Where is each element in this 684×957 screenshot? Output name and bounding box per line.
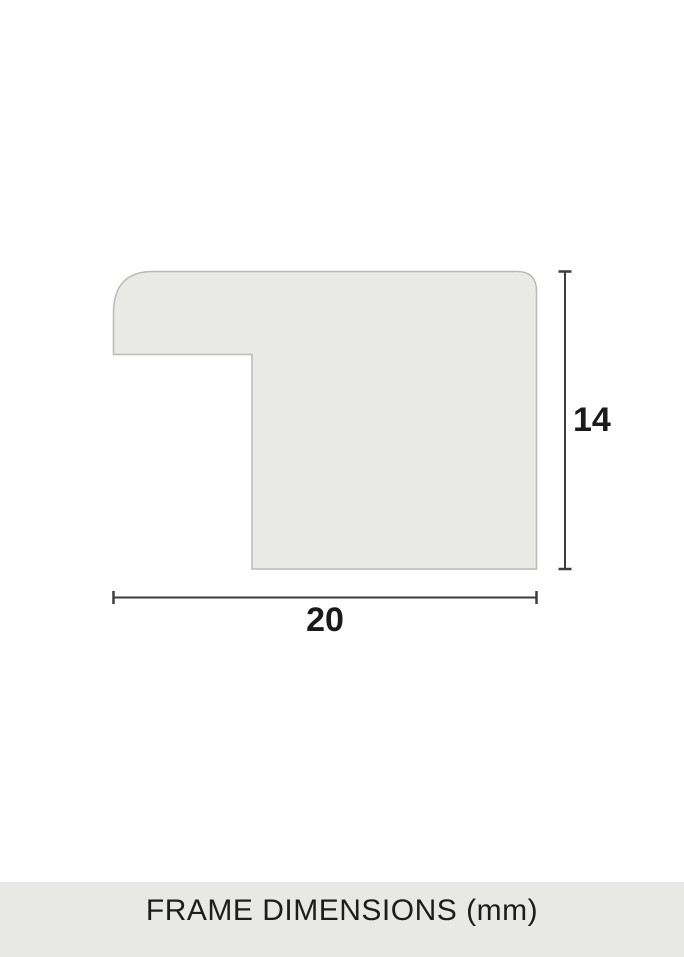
frame-profile-shape	[114, 272, 537, 570]
frame-dimensions-label: FRAME DIMENSIONS (mm)	[0, 893, 684, 929]
height-dimension-line	[559, 272, 572, 570]
width-dimension-value: 20	[275, 600, 375, 640]
frame-profile-diagram: 14 20	[0, 0, 684, 882]
height-dimension-value: 14	[573, 400, 611, 440]
footer-band: FRAME DIMENSIONS (mm)	[0, 882, 684, 957]
frame-dimensions-page: 14 20 FRAME DIMENSIONS (mm)	[0, 0, 684, 957]
